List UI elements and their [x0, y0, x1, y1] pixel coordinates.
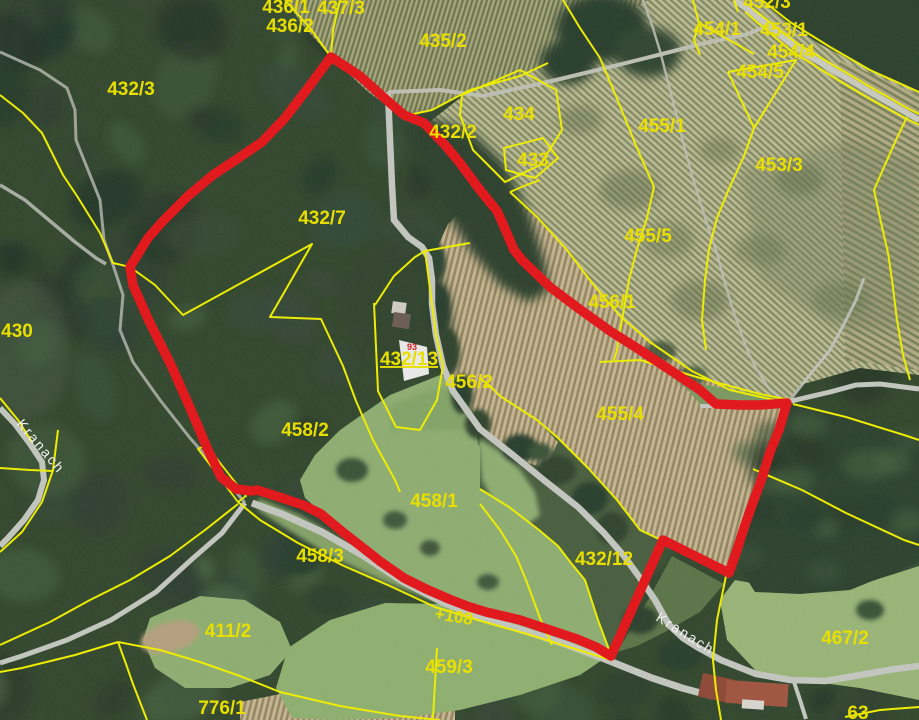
svg-text:454/4: 454/4	[767, 42, 815, 63]
svg-text:432/12: 432/12	[575, 549, 633, 570]
svg-text:455/4: 455/4	[596, 404, 644, 425]
svg-text:430: 430	[1, 321, 33, 342]
svg-text:432/2: 432/2	[429, 122, 477, 143]
svg-text:436/2: 436/2	[266, 16, 314, 37]
svg-text:434: 434	[503, 104, 535, 125]
svg-text:432/13: 432/13	[380, 349, 438, 370]
svg-text:411/2: 411/2	[205, 621, 252, 642]
svg-text:456/1: 456/1	[588, 292, 636, 313]
svg-text:458/2: 458/2	[281, 420, 329, 441]
svg-text:456/2: 456/2	[445, 372, 493, 393]
svg-text:459/3: 459/3	[425, 657, 473, 678]
svg-text:455/1: 455/1	[638, 116, 686, 137]
svg-text:433: 433	[517, 150, 549, 171]
svg-text:437/3: 437/3	[317, 0, 365, 19]
svg-text:453/1: 453/1	[760, 20, 808, 41]
svg-text:432/7: 432/7	[298, 208, 346, 229]
svg-text:432/3: 432/3	[107, 79, 155, 100]
svg-text:467/2: 467/2	[821, 628, 869, 649]
svg-text:454/1: 454/1	[693, 19, 741, 40]
svg-text:452/3: 452/3	[743, 0, 791, 13]
svg-text:458/3: 458/3	[296, 546, 344, 567]
svg-text:458/1: 458/1	[410, 491, 458, 512]
svg-text:63: 63	[847, 703, 868, 720]
svg-text:454/5: 454/5	[736, 62, 784, 83]
svg-text:93: 93	[407, 342, 417, 352]
svg-text:455/5: 455/5	[624, 226, 672, 247]
svg-text:453/3: 453/3	[755, 155, 803, 176]
svg-text:776/1: 776/1	[198, 698, 246, 719]
svg-text:435/2: 435/2	[419, 31, 467, 52]
